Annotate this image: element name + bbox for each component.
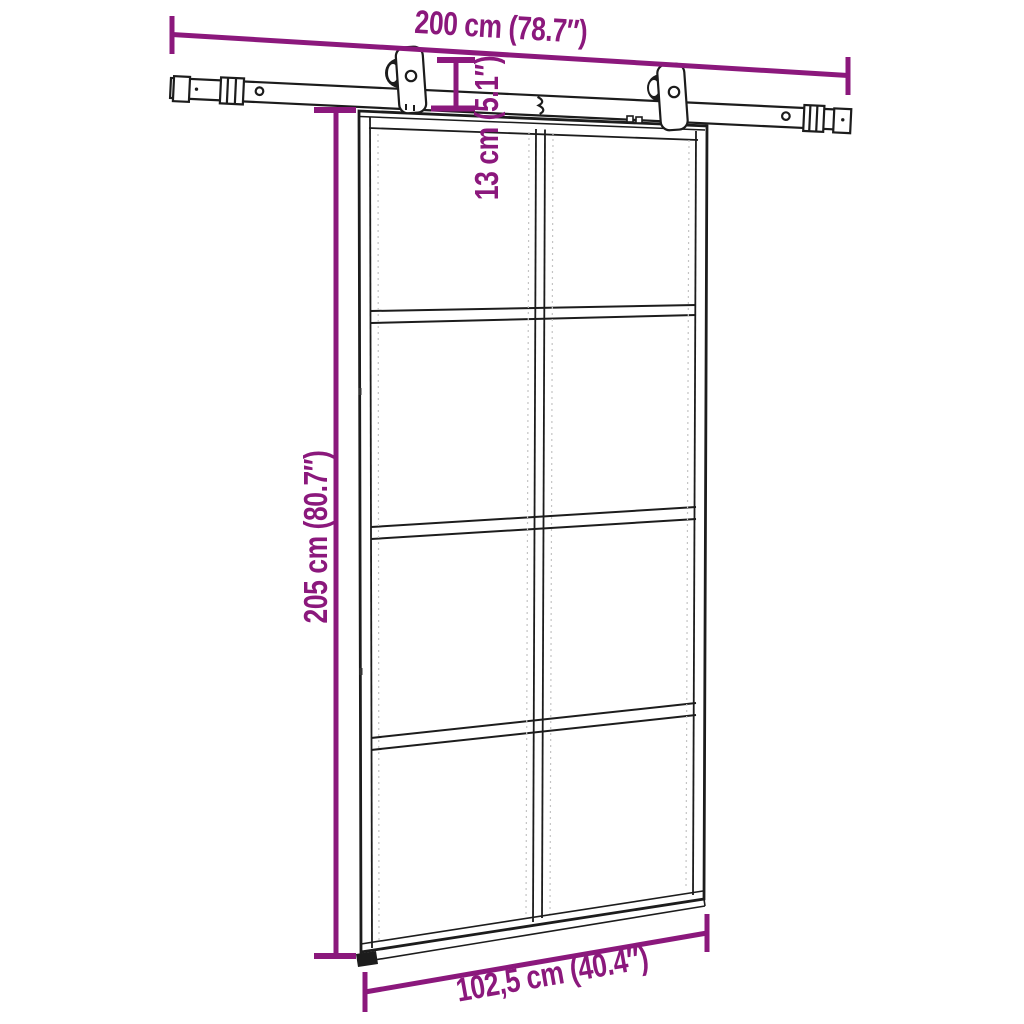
rail-end-cap-left xyxy=(173,76,190,102)
diagram-canvas: 200 cm (78.7″) 13 cm (5.1″) 205 cm (80.7… xyxy=(0,0,1024,1024)
sleeve-groove xyxy=(227,78,228,104)
glass-door xyxy=(356,111,707,967)
sleeve-groove xyxy=(809,105,810,131)
frame-screw-mark xyxy=(359,388,362,395)
rail-sleeve-right xyxy=(803,105,824,132)
sleeve-groove xyxy=(235,78,236,104)
door-height-label: 205 cm (80.7″) xyxy=(297,451,335,624)
sleeve-groove xyxy=(816,106,817,132)
frame-screw-mark xyxy=(360,668,363,675)
strap-bolt-hole-right xyxy=(669,87,679,97)
rail-hole-left xyxy=(255,87,263,95)
bottom-band-end xyxy=(704,899,705,906)
rail-drop-label: 13 cm (5.1″) xyxy=(468,56,506,200)
strap-bolt-mark xyxy=(627,116,633,122)
rail-sleeve-left xyxy=(220,77,244,104)
floor-guide xyxy=(356,951,378,967)
strap-bolt-hole-left xyxy=(406,71,416,81)
strap-bolt-mark xyxy=(636,117,642,123)
rail-hole-right xyxy=(782,112,790,120)
diagram-linework xyxy=(0,0,1024,1024)
